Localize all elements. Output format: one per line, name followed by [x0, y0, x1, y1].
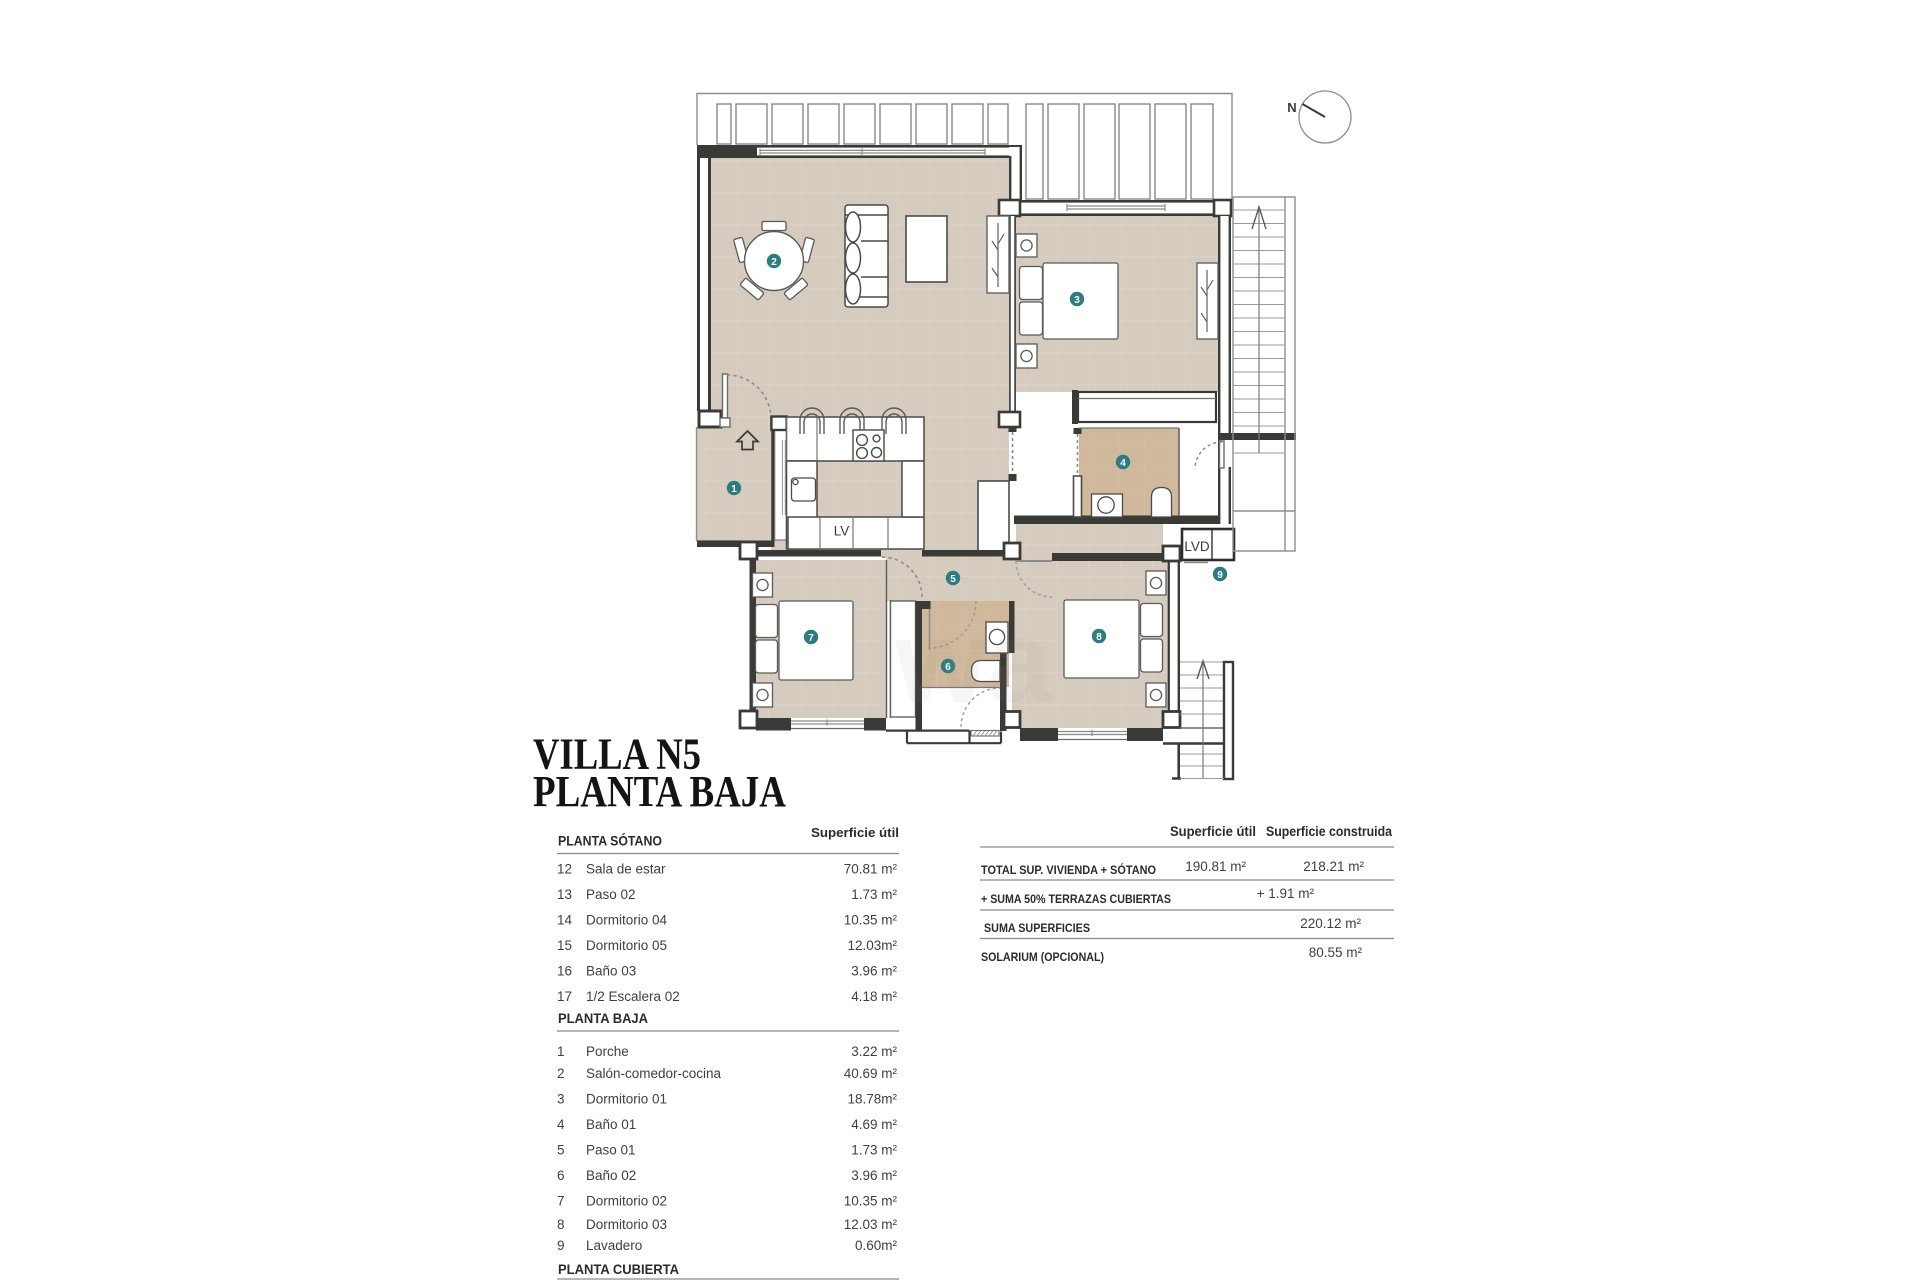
svg-text:12.03 m²: 12.03 m²: [844, 1217, 898, 1232]
svg-text:5: 5: [557, 1143, 565, 1158]
svg-text:+ 1.91 m²: + 1.91 m²: [1257, 886, 1315, 901]
svg-text:12: 12: [557, 862, 572, 877]
svg-text:SUMA SUPERFICIES: SUMA SUPERFICIES: [984, 921, 1090, 935]
svg-text:PLANTA BAJA: PLANTA BAJA: [533, 767, 786, 816]
svg-text:218.21 m²: 218.21 m²: [1303, 859, 1364, 874]
svg-text:5: 5: [950, 574, 956, 585]
svg-text:9: 9: [1217, 570, 1223, 581]
svg-text:Superficie útil: Superficie útil: [1170, 824, 1256, 839]
svg-text:1.73 m²: 1.73 m²: [851, 887, 897, 902]
svg-text:40.69 m²: 40.69 m²: [844, 1066, 898, 1081]
svg-text:4: 4: [1120, 458, 1126, 469]
svg-text:LV: LV: [834, 524, 850, 539]
svg-text:LVD: LVD: [1184, 539, 1210, 554]
svg-text:Porche: Porche: [586, 1044, 629, 1059]
svg-text:Paso 01: Paso 01: [586, 1143, 636, 1158]
svg-text:10.35 m²: 10.35 m²: [844, 913, 898, 928]
svg-text:18.78m²: 18.78m²: [847, 1092, 897, 1107]
svg-text:TOTAL SUP. VIVIENDA + SÓTANO: TOTAL SUP. VIVIENDA + SÓTANO: [981, 862, 1156, 877]
svg-text:3.96 m²: 3.96 m²: [851, 964, 897, 979]
svg-text:wa: wa: [894, 596, 1054, 728]
svg-text:13: 13: [557, 887, 572, 902]
svg-text:17: 17: [557, 989, 572, 1004]
svg-text:Lavadero: Lavadero: [586, 1238, 642, 1253]
svg-text:80.55 m²: 80.55 m²: [1309, 945, 1363, 960]
svg-text:Superficie útil: Superficie útil: [811, 825, 899, 840]
svg-text:8: 8: [557, 1217, 565, 1232]
svg-text:14: 14: [557, 913, 573, 928]
svg-text:70.81 m²: 70.81 m²: [844, 862, 898, 877]
svg-text:Baño 03: Baño 03: [586, 964, 636, 979]
svg-text:Baño 01: Baño 01: [586, 1117, 636, 1132]
svg-text:7: 7: [808, 633, 814, 644]
svg-text:6: 6: [557, 1168, 565, 1183]
svg-text:8: 8: [1096, 632, 1102, 643]
svg-text:15: 15: [557, 938, 572, 953]
svg-text:4.18 m²: 4.18 m²: [851, 989, 897, 1004]
svg-text:2: 2: [557, 1066, 565, 1081]
svg-text:4: 4: [557, 1117, 565, 1132]
svg-text:16: 16: [557, 964, 572, 979]
svg-text:Dormitorio 02: Dormitorio 02: [586, 1194, 667, 1209]
svg-text:0.60m²: 0.60m²: [855, 1238, 898, 1253]
svg-text:1/2 Escalera 02: 1/2 Escalera 02: [586, 989, 680, 1004]
svg-text:Paso 02: Paso 02: [586, 887, 636, 902]
svg-text:4.69 m²: 4.69 m²: [851, 1117, 897, 1132]
svg-text:PLANTA BAJA: PLANTA BAJA: [558, 1011, 648, 1027]
svg-text:3.96 m²: 3.96 m²: [851, 1168, 897, 1183]
svg-text:10.35 m²: 10.35 m²: [844, 1194, 898, 1209]
svg-text:220.12 m²: 220.12 m²: [1300, 916, 1361, 931]
svg-text:7: 7: [557, 1194, 565, 1209]
svg-text:Dormitorio 01: Dormitorio 01: [586, 1092, 667, 1107]
svg-text:PLANTA SÓTANO: PLANTA SÓTANO: [558, 832, 662, 850]
svg-text:SOLARIUM (OPCIONAL): SOLARIUM (OPCIONAL): [981, 950, 1104, 964]
svg-text:2: 2: [771, 257, 777, 268]
svg-text:12.03m²: 12.03m²: [847, 938, 897, 953]
svg-text:PLANTA CUBIERTA: PLANTA CUBIERTA: [558, 1262, 679, 1278]
svg-text:3.22 m²: 3.22 m²: [851, 1044, 897, 1059]
svg-text:9: 9: [557, 1238, 565, 1253]
svg-text:Salón-comedor-cocina: Salón-comedor-cocina: [586, 1066, 722, 1081]
svg-text:Sala de estar: Sala de estar: [586, 862, 666, 877]
svg-text:+ SUMA 50% TERRAZAS CUBIERTAS: + SUMA 50% TERRAZAS CUBIERTAS: [981, 892, 1171, 906]
svg-text:Superficie construida: Superficie construida: [1266, 824, 1392, 839]
svg-text:1: 1: [557, 1044, 565, 1059]
svg-text:3: 3: [1074, 295, 1080, 306]
svg-text:Dormitorio 04: Dormitorio 04: [586, 913, 668, 928]
svg-text:3: 3: [557, 1092, 565, 1107]
svg-text:1.73 m²: 1.73 m²: [851, 1143, 897, 1158]
svg-text:190.81 m²: 190.81 m²: [1185, 859, 1246, 874]
svg-text:Dormitorio 03: Dormitorio 03: [586, 1217, 667, 1232]
svg-text:Dormitorio 05: Dormitorio 05: [586, 938, 667, 953]
svg-text:Baño 02: Baño 02: [586, 1168, 636, 1183]
svg-text:1: 1: [731, 484, 737, 495]
svg-text:N: N: [1287, 100, 1296, 115]
